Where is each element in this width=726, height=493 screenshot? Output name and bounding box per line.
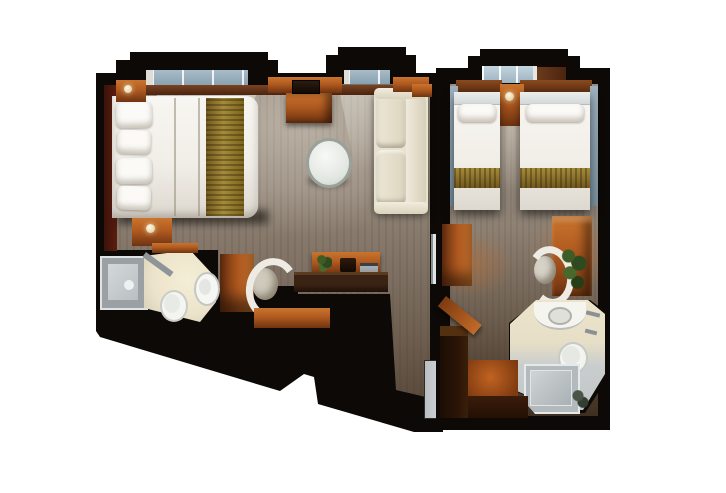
tv: [292, 80, 320, 94]
toilet-seat: [562, 346, 580, 365]
left-window-glass: [152, 70, 248, 86]
desk-item: [340, 258, 356, 272]
sofa-back-cushion: [406, 94, 426, 208]
lamp: [146, 224, 155, 233]
sofa-seat-cushion: [376, 150, 406, 204]
toilet-seat: [164, 294, 180, 313]
sofa-armrest: [374, 202, 428, 214]
round-table: [306, 138, 352, 188]
plant: [316, 253, 332, 272]
bathroom-cabinet: [152, 243, 198, 253]
wardrobe: [442, 224, 472, 286]
bed-runner: [206, 98, 244, 216]
entry-floor: [468, 396, 528, 418]
pillow: [116, 158, 152, 185]
left-window-curtain: [146, 70, 153, 86]
curtain-panel: [590, 86, 598, 206]
desk-top: [294, 272, 388, 292]
bench: [254, 308, 330, 328]
middle-window-curtain: [344, 70, 349, 84]
duvet-crease: [198, 98, 200, 216]
bed-runner: [454, 168, 500, 188]
two-cabin-floor-plan: [0, 0, 726, 493]
dresser: [286, 93, 332, 123]
shower-floor: [530, 370, 572, 406]
bed-runner: [520, 168, 590, 188]
basin-bowl: [199, 279, 211, 295]
duvet-crease: [174, 98, 176, 216]
corridor-closet: [440, 326, 468, 418]
wall-shelf: [412, 84, 432, 97]
lamp: [505, 92, 514, 101]
bathroom-plant: [570, 388, 590, 410]
basin: [548, 307, 572, 325]
middle-window-glass: [348, 70, 390, 84]
pillow: [458, 104, 496, 122]
pillow: [117, 185, 152, 210]
pillow: [116, 101, 153, 128]
shower-drain: [124, 280, 134, 290]
lamp: [124, 85, 132, 93]
entry-floor-mat: [468, 360, 518, 398]
plant: [558, 244, 588, 292]
pillow: [117, 129, 152, 154]
pillow: [526, 104, 584, 122]
sofa-seat-cushion: [376, 94, 406, 148]
